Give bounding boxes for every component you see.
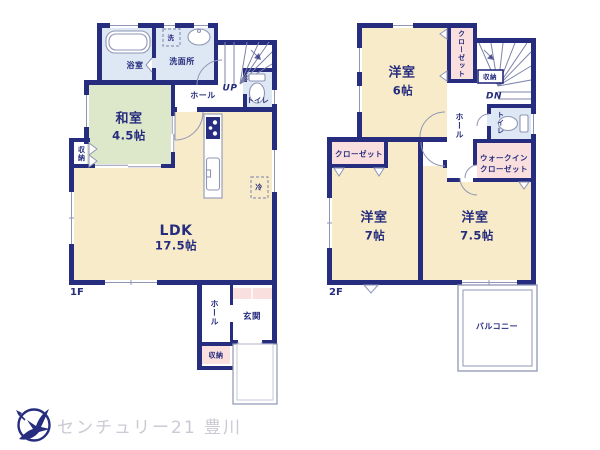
room-label-entrance: 玄関 — [243, 313, 261, 322]
room-label-storage-lower: 収納 — [209, 353, 224, 360]
fridge-label: 冷 — [255, 185, 263, 192]
room-label-ldk: LDK — [160, 224, 193, 238]
room-label-room75: 洋室 — [461, 212, 488, 225]
room-label-toilet-1f: トイレ — [247, 98, 270, 105]
floor1-label: 1F — [70, 288, 84, 298]
room-label-laundry: 洗 — [168, 35, 175, 42]
kitchen-counter — [204, 114, 222, 198]
floor2-label: 2F — [329, 288, 343, 298]
room-label-balcony: バルコニー — [476, 323, 518, 331]
compass-bird-icon — [12, 401, 56, 447]
bathtub-icon — [106, 31, 150, 53]
room-label-room7: 洋室 — [360, 212, 387, 225]
floor1-plan — [69, 23, 277, 404]
floor2-plan — [327, 23, 537, 371]
company-name: センチュリー21 豊川 — [57, 420, 242, 437]
room-label-hall-1f: ホール — [190, 92, 216, 100]
washbasin-icon — [188, 29, 210, 45]
stove-icon — [206, 117, 220, 139]
floorplan-page: 浴室 洗 洗面所 ホール UP トイレ 和室 4.5帖 収納 LDK 17.5帖… — [0, 0, 600, 450]
room-label-walkin-line2: クローゼット — [480, 165, 528, 173]
room-label-closet-left: クローゼット — [335, 150, 383, 158]
room-label-room6: 洋室 — [388, 67, 415, 80]
room-size-room6: 6帖 — [393, 85, 414, 97]
room-label-bathroom: 浴室 — [127, 62, 144, 70]
entrance-porch — [233, 344, 277, 404]
room-size-ldk: 17.5帖 — [155, 240, 197, 252]
floorplan-drawing — [0, 0, 600, 450]
room-label-closet-upper: クローゼット — [458, 30, 465, 78]
room-label-japanese-room: 和室 — [115, 113, 142, 126]
room-size-room75: 7.5帖 — [460, 230, 494, 242]
room-label-storage-left: 収納 — [78, 146, 85, 162]
room-label-washroom: 洗面所 — [169, 58, 195, 66]
room-size-japanese-room: 4.5帖 — [112, 130, 146, 142]
room-label-walkin-line1: ウォークイン — [480, 154, 528, 162]
room-label-hall-lower: ホール — [210, 300, 218, 327]
stairs-down-label: DN — [486, 93, 502, 102]
room-label-hall-2f: ホール — [455, 113, 463, 140]
stairs-up-label: UP — [223, 85, 238, 94]
room-label-toilet-2f: トイレ — [497, 111, 504, 135]
room-size-room7: 7帖 — [365, 230, 386, 242]
room-label-storage-2f: 収納 — [483, 74, 497, 81]
